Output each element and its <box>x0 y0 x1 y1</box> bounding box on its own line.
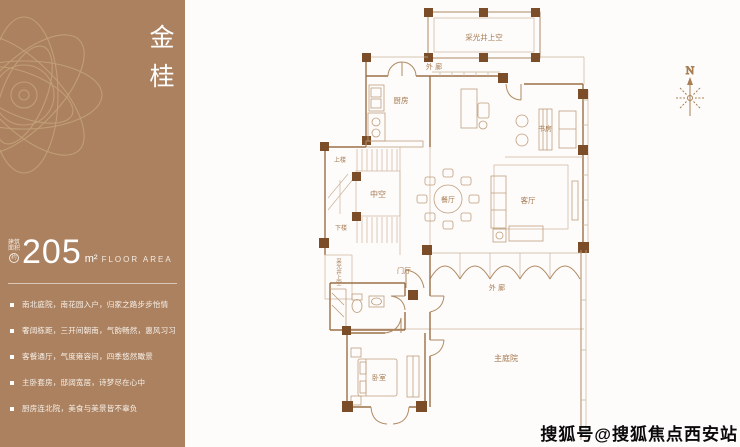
sidebar-divider <box>8 283 177 284</box>
feature-item: 南北庭院，南花园入户，归家之路步步怡情 <box>10 299 180 310</box>
label-kitchen: 厨房 <box>394 95 409 105</box>
label-stairs-up: 上楼 <box>334 156 346 164</box>
label-living: 客厅 <box>521 195 536 205</box>
label-study: 书房 <box>538 124 552 133</box>
flower-decoration-icon <box>0 0 152 222</box>
label-void: 中空 <box>370 189 386 199</box>
bedroom <box>342 290 427 424</box>
feature-text: 厨房连北院，美食与美景皆不辜负 <box>22 403 138 414</box>
label-corridor-bottom: 外 廊 <box>489 283 505 292</box>
sidebar: 金桂 建筑 面积 约 205 m² FLOOR AREA 南北庭院，南花园入户，… <box>0 0 185 447</box>
arcade <box>348 245 584 329</box>
area-unit-label: FLOOR AREA <box>102 255 173 264</box>
feature-item: 奢阔栋距，三开间朝南，气韵畅然，惠风习习 <box>10 325 180 336</box>
feature-text: 客餐通厅，气度雍容间，四季悠然瞰景 <box>22 351 153 362</box>
label-lightwell-left: 采光井上空 <box>335 257 342 286</box>
page: N 采光井上空 外 廊 厨房 餐厅 客厅 书房 中空 上楼 下楼 门厅 卧室 外… <box>0 0 740 447</box>
bullet-square-icon <box>10 303 14 307</box>
compass-icon: N <box>676 66 704 116</box>
dining-table <box>417 89 489 229</box>
bullet-square-icon <box>10 329 14 333</box>
study-furniture <box>505 109 583 157</box>
feature-text: 南北庭院，南花园入户，归家之路步步怡情 <box>22 299 168 310</box>
walls-north <box>362 53 589 253</box>
hall-east-wall <box>430 255 444 407</box>
page-title: 金桂 <box>148 24 173 102</box>
area-unit: m² <box>85 253 98 265</box>
label-courtyard: 主庭院 <box>494 353 518 363</box>
watermark-text: 搜狐号@搜狐焦点西安站 <box>540 420 738 445</box>
label-corridor-top: 外 廊 <box>426 62 442 71</box>
feature-item: 客餐通厅，气度雍容间，四季悠然瞰景 <box>10 351 180 362</box>
bullet-square-icon <box>10 381 14 385</box>
label-foyer: 门厅 <box>397 266 411 275</box>
feature-text: 主卧套房，邸阔宽居，诗梦尽在心中 <box>22 377 145 388</box>
label-dining: 餐厅 <box>441 195 455 204</box>
feature-item: 主卧套房，邸阔宽居，诗梦尽在心中 <box>10 377 180 388</box>
area-prefix: 建筑 面积 约 <box>8 240 20 263</box>
bathroom <box>330 283 405 330</box>
label-bedroom: 卧室 <box>372 373 386 382</box>
bullet-square-icon <box>10 355 14 359</box>
label-lightwell-top: 采光井上空 <box>465 32 503 42</box>
feature-list: 南北庭院，南花园入户，归家之路步步怡情 奢阔栋距，三开间朝南，气韵畅然，惠风习习… <box>10 299 180 429</box>
area-prefix-line2: 面积 <box>8 246 20 252</box>
floor-area-block: 建筑 面积 约 205 m² FLOOR AREA <box>8 237 173 267</box>
bullet-square-icon <box>10 407 14 411</box>
feature-text: 奢阔栋距，三开间朝南，气韵畅然，惠风习习 <box>22 325 176 336</box>
courtyard-wall <box>581 250 586 440</box>
area-value: 205 <box>22 237 82 267</box>
area-prefix-circle: 约 <box>9 253 19 263</box>
compass-n-label: N <box>686 66 695 77</box>
kitchen-fixtures <box>366 85 423 147</box>
label-stairs-down: 下楼 <box>335 224 347 232</box>
feature-item: 厨房连北院，美食与美景皆不辜负 <box>10 403 180 414</box>
